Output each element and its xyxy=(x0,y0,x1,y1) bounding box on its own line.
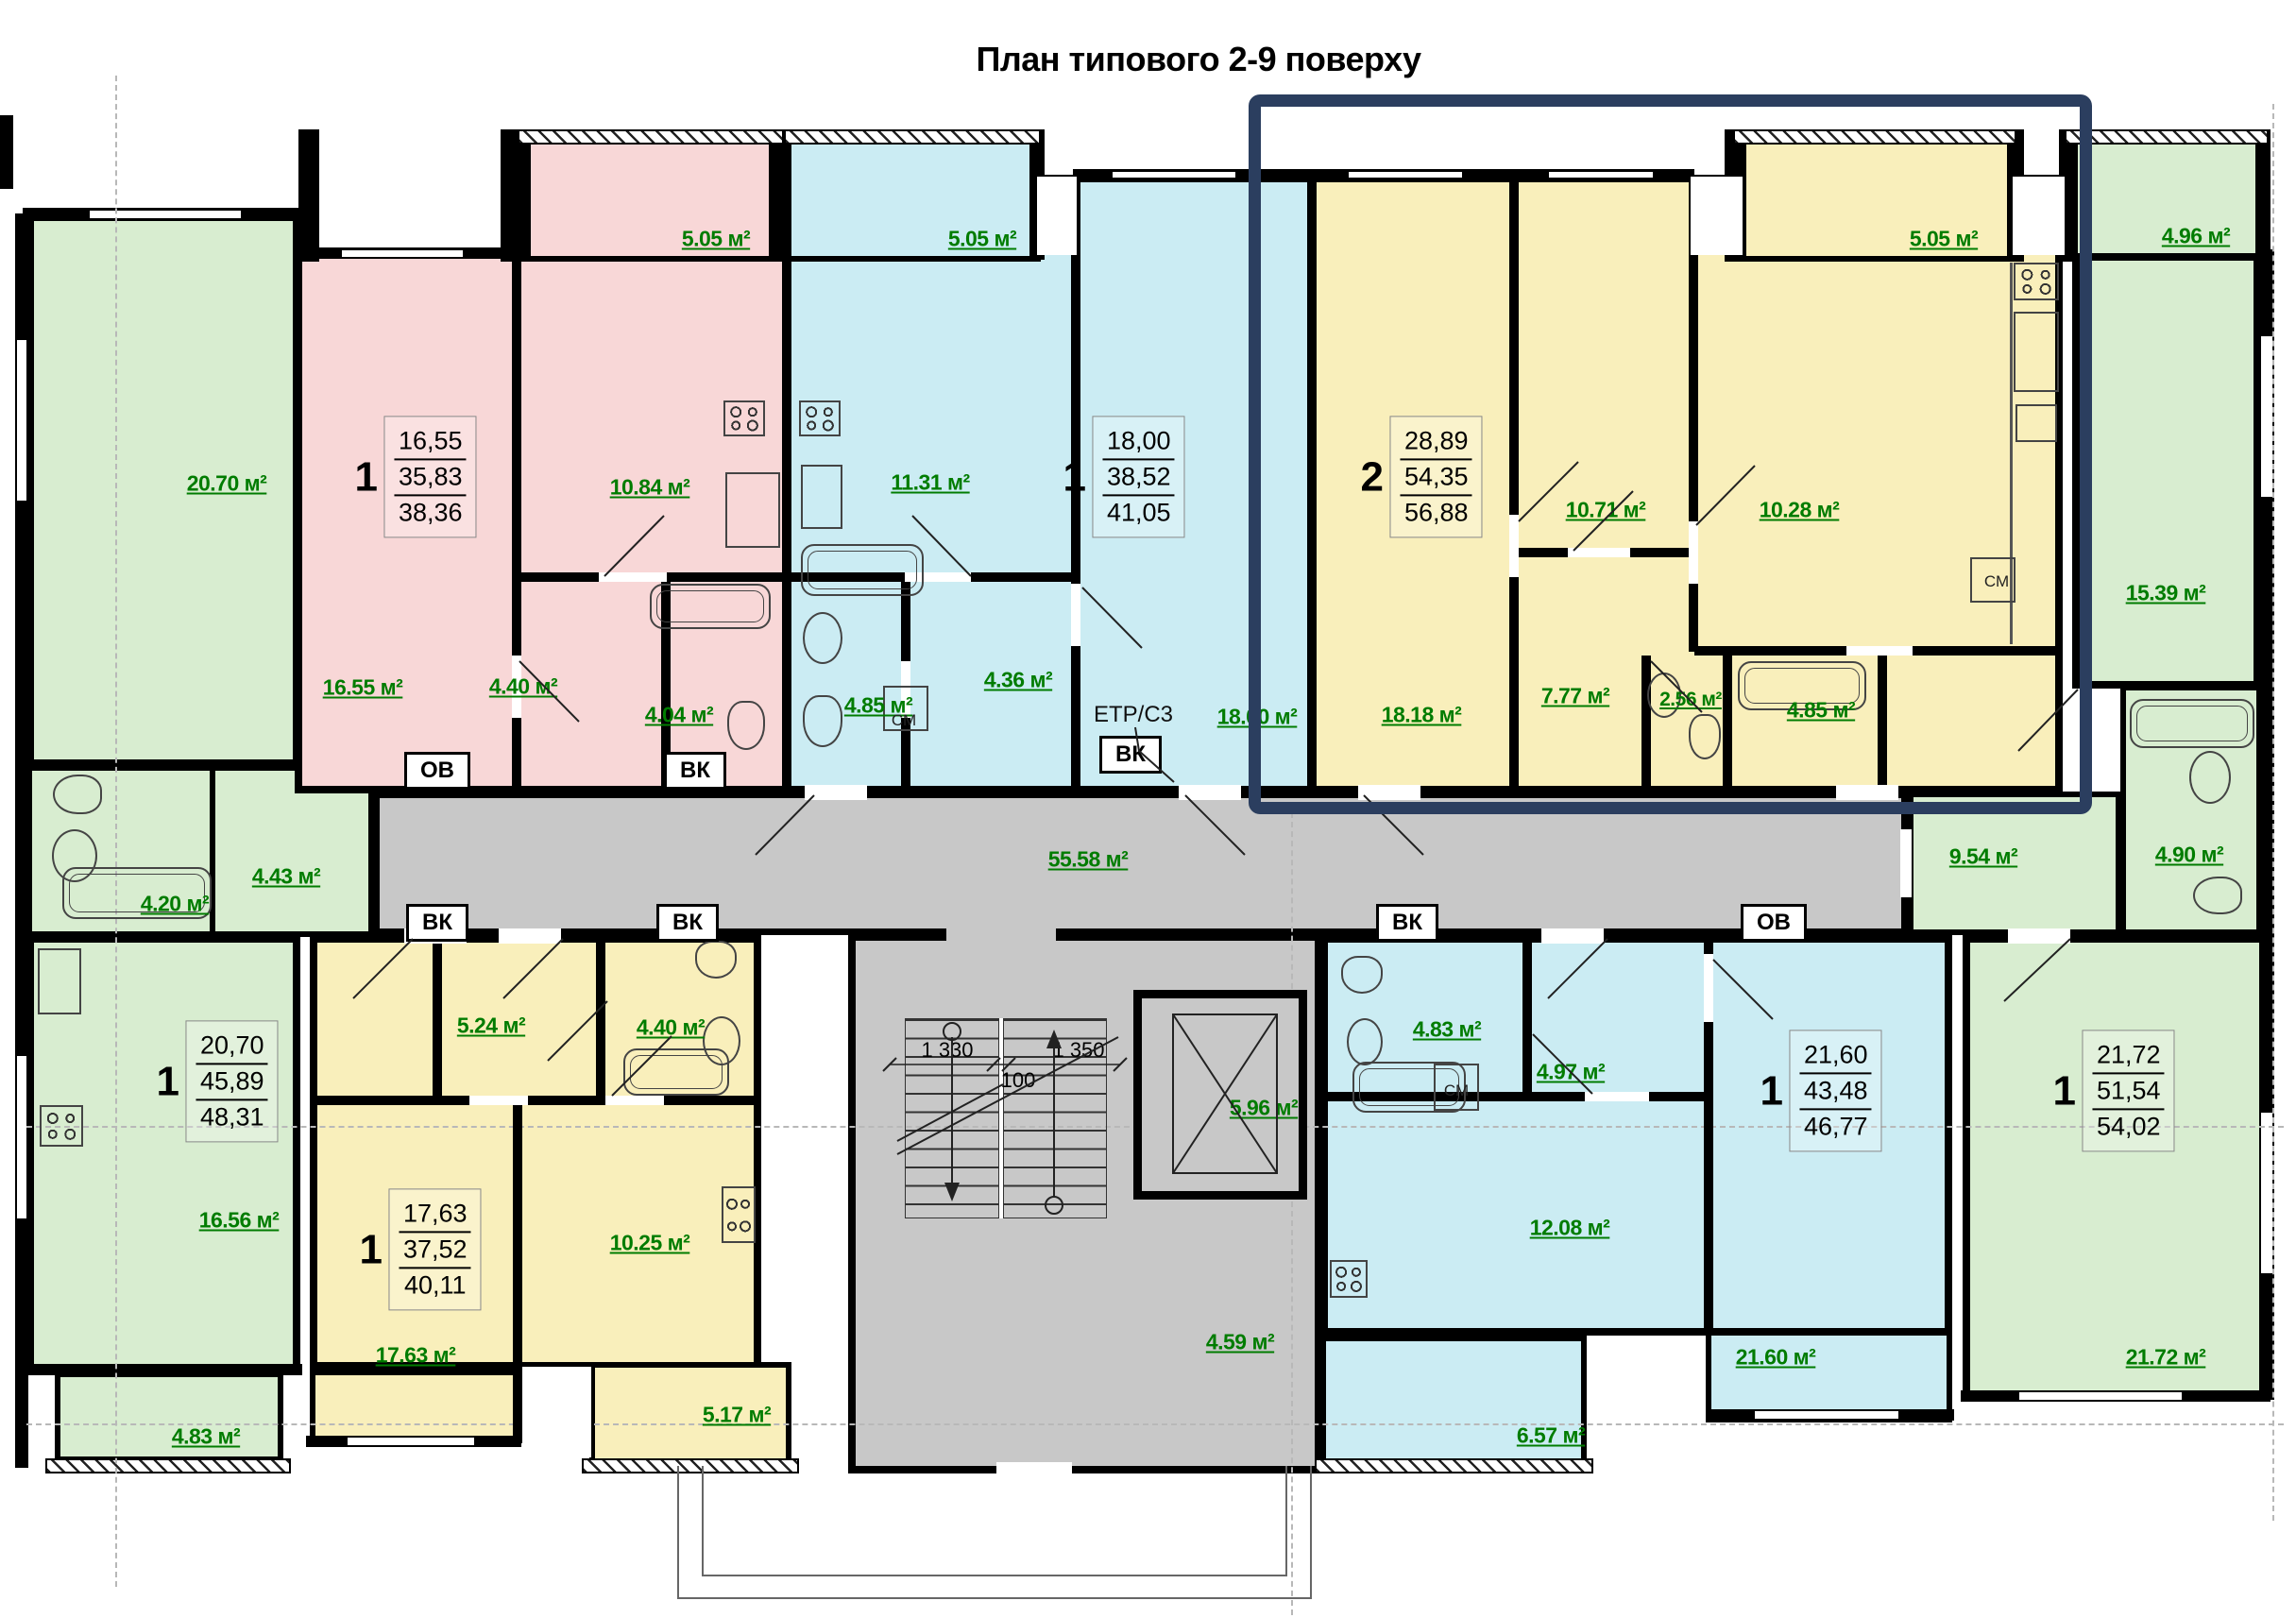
door-opening xyxy=(1541,928,1604,944)
axis-line xyxy=(1291,812,1293,1615)
bathtub-icon xyxy=(650,584,771,629)
area-label: 4.43 м² xyxy=(252,864,320,890)
room-yellow-bottom-living-ext xyxy=(310,1370,519,1443)
axis-line xyxy=(115,76,117,1587)
balcony-parapet xyxy=(45,1458,291,1473)
fridge-icon xyxy=(725,472,780,548)
rooms-count: 1 xyxy=(1760,1070,1782,1112)
area-label: 4.40 м² xyxy=(489,674,557,700)
apartment-spec-green-left: 1 20,7045,8948,31 xyxy=(156,1020,278,1142)
area-label: 5.24 м² xyxy=(457,1013,525,1039)
apartment-spec-cyan-bottom: 1 21,6043,4846,77 xyxy=(1760,1030,1881,1151)
door-opening xyxy=(599,572,667,582)
area-label: 16.56 м² xyxy=(199,1208,280,1234)
axis-line xyxy=(26,1423,2284,1425)
window xyxy=(15,340,28,501)
window xyxy=(2019,1390,2182,1402)
toilet-icon xyxy=(2193,877,2242,914)
window xyxy=(348,1436,474,1447)
area-label: 20.70 м² xyxy=(187,471,267,497)
exterior-wall xyxy=(15,213,28,937)
wall-stub xyxy=(501,129,525,262)
area-label: 16.55 м² xyxy=(323,675,403,701)
wall-stub xyxy=(298,129,319,262)
entrance-door-opening xyxy=(996,1462,1072,1475)
area-label: 17.63 м² xyxy=(376,1343,456,1369)
balcony-parapet xyxy=(2065,129,2269,145)
wall xyxy=(513,1105,522,1443)
window xyxy=(1113,170,1235,179)
balcony-parapet xyxy=(582,1458,799,1473)
highlighted-apartment-frame[interactable] xyxy=(1249,94,2092,814)
exterior-wall xyxy=(23,1364,302,1375)
door-opening xyxy=(1900,829,1912,897)
service-tag-vk: ВК xyxy=(1376,904,1438,942)
area-label: 12.08 м² xyxy=(1530,1216,1610,1241)
stove-icon xyxy=(1330,1260,1368,1298)
area-label: 4.97 м² xyxy=(1537,1060,1605,1085)
balcony-green-left xyxy=(55,1371,283,1462)
bathtub-icon xyxy=(801,544,924,596)
fridge-icon xyxy=(801,465,842,529)
rooms-count: 1 xyxy=(156,1061,179,1102)
wall xyxy=(433,935,442,1100)
area-label: 6.57 м² xyxy=(1517,1423,1585,1449)
area-label: 10.25 м² xyxy=(610,1231,690,1256)
door-opening xyxy=(605,1096,664,1105)
bathtub-icon xyxy=(2130,699,2254,748)
sink-icon xyxy=(1347,1018,1383,1065)
stove-icon xyxy=(799,400,841,436)
wall-stub xyxy=(773,129,791,262)
door-opening xyxy=(499,928,561,944)
rooms-count: 1 xyxy=(2052,1070,2075,1112)
area-label: 21.60 м² xyxy=(1736,1345,1816,1371)
service-tag-vk: ВК xyxy=(656,904,719,942)
service-tag-ov: ОВ xyxy=(1741,904,1807,942)
window xyxy=(1755,1409,1898,1421)
apartment-spec-green-right: 1 21,7251,5454,02 xyxy=(2052,1030,2174,1151)
service-tag-vk: ВК xyxy=(1099,736,1162,774)
area-label: 4.20 м² xyxy=(141,892,209,917)
facade-recess xyxy=(1037,177,1077,255)
door-opening xyxy=(469,1096,528,1105)
service-tag-vk: ВК xyxy=(406,904,468,942)
balcony-parapet xyxy=(1315,1458,1593,1473)
area-label: 4.83 м² xyxy=(1413,1017,1481,1043)
area-label: 4.59 м² xyxy=(1206,1330,1274,1355)
window xyxy=(15,1056,28,1218)
area-label: 5.96 м² xyxy=(1230,1096,1298,1121)
stove-icon xyxy=(40,1105,83,1147)
dimension-label: 1 350 xyxy=(1052,1038,1104,1063)
stair-opening xyxy=(946,927,1056,942)
apartment-green-right-bottom[interactable] xyxy=(1963,935,2269,1400)
stove-icon xyxy=(723,400,765,436)
area-label: 4.96 м² xyxy=(2162,224,2230,249)
toilet-icon xyxy=(1341,956,1383,994)
dimension-label: 1 330 xyxy=(921,1038,973,1063)
area-label: 4.90 м² xyxy=(2155,843,2223,868)
area-label: 4.40 м² xyxy=(637,1015,705,1041)
area-label: 15.39 м² xyxy=(2126,581,2206,606)
area-label: 4.04 м² xyxy=(645,703,713,728)
facade-recess xyxy=(522,1367,591,1457)
toilet-icon xyxy=(803,695,842,747)
washer-label: СМ xyxy=(1444,1082,1469,1100)
dimension-label: 100 xyxy=(1001,1068,1036,1093)
wall xyxy=(315,1096,757,1105)
floor-plan: План типового 2-9 поверху xyxy=(0,0,2296,1618)
rooms-count: 1 xyxy=(354,456,377,498)
balcony-parapet xyxy=(784,129,1041,145)
bathtub-icon xyxy=(623,1048,729,1096)
apartment-spec-yellow-bottom: 1 17,6337,5240,11 xyxy=(359,1188,481,1310)
apartment-spec-cyan: 1 18,0038,5241,05 xyxy=(1063,416,1184,537)
window xyxy=(90,209,241,220)
sink-icon xyxy=(803,612,842,664)
wall-stub xyxy=(0,115,13,189)
balcony-parapet xyxy=(518,129,784,145)
area-label: 4.36 м² xyxy=(984,668,1052,693)
service-tag-vk: ВК xyxy=(664,752,726,790)
area-label: 4.83 м² xyxy=(172,1424,240,1450)
door-opening xyxy=(2008,928,2070,944)
toilet-icon xyxy=(53,775,102,814)
fridge-icon xyxy=(38,948,81,1014)
door-opening xyxy=(805,785,867,800)
axis-line xyxy=(2272,104,2274,1521)
plan-title: План типового 2-9 поверху xyxy=(976,40,1420,79)
wall xyxy=(1522,935,1532,1098)
rooms-count: 1 xyxy=(359,1229,382,1270)
area-label: 5.05 м² xyxy=(682,227,750,252)
toilet-icon xyxy=(695,941,737,979)
area-label: 9.54 м² xyxy=(1949,844,2017,870)
stair-divider xyxy=(999,1018,1003,1218)
door-opening xyxy=(1071,584,1080,646)
window xyxy=(342,248,463,259)
area-label: 10.84 м² xyxy=(610,475,690,501)
wall xyxy=(596,935,605,1100)
toilet-icon xyxy=(727,701,765,750)
etr-label: ЕТР/С3 xyxy=(1094,702,1173,728)
area-label: 21.72 м² xyxy=(2126,1345,2206,1371)
apartment-spec-pink: 1 16,5535,8338,36 xyxy=(354,416,476,537)
door-opening xyxy=(1704,954,1713,1022)
sink-icon xyxy=(2189,751,2231,804)
door-opening xyxy=(1179,785,1241,800)
service-tag-ov: ОВ xyxy=(404,752,470,790)
wall-stub xyxy=(2255,129,2270,262)
apartment-green-right-bedroom[interactable] xyxy=(2072,253,2261,689)
door-opening xyxy=(1585,1092,1649,1101)
area-label: 5.17 м² xyxy=(703,1403,771,1428)
stove-icon xyxy=(722,1186,756,1243)
rooms-count: 1 xyxy=(1063,456,1085,498)
washer-label: СМ xyxy=(892,711,916,730)
area-label: 55.58 м² xyxy=(1048,847,1129,873)
area-label: 11.31 м² xyxy=(891,470,969,496)
area-label: 5.05 м² xyxy=(948,227,1016,252)
